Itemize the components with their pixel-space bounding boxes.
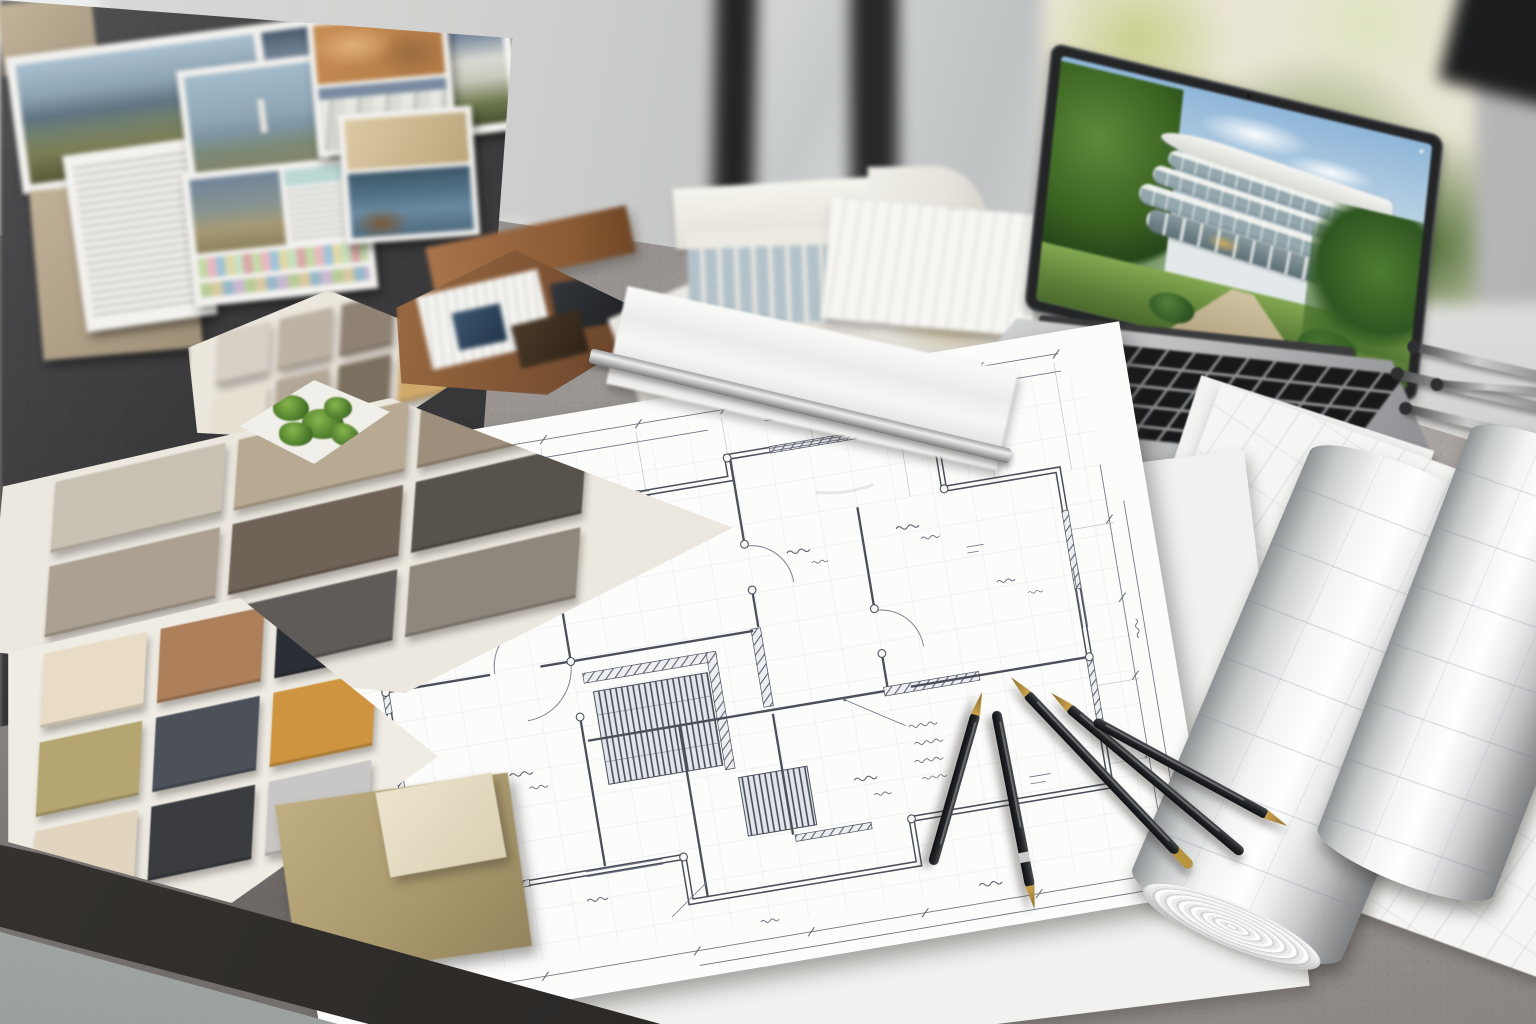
valley-photo — [189, 171, 286, 254]
pen-band — [1019, 851, 1031, 863]
material-tile — [40, 632, 147, 728]
lighthouse-tower — [257, 98, 268, 133]
photo-architect-desk — [0, 0, 1536, 1024]
coastline-photo — [348, 166, 474, 238]
beige-texture-photo — [344, 112, 469, 171]
pinned-coastline-card — [338, 105, 481, 244]
material-tile — [148, 785, 255, 881]
material-tile — [157, 607, 264, 703]
webcam-dot — [1247, 94, 1250, 98]
material-tile — [277, 307, 333, 371]
material-tile — [152, 696, 259, 792]
plant-sprig — [279, 422, 313, 446]
screen-ui-dot — [1420, 149, 1424, 154]
plant-sprig — [324, 397, 352, 419]
material-tile — [36, 721, 143, 817]
